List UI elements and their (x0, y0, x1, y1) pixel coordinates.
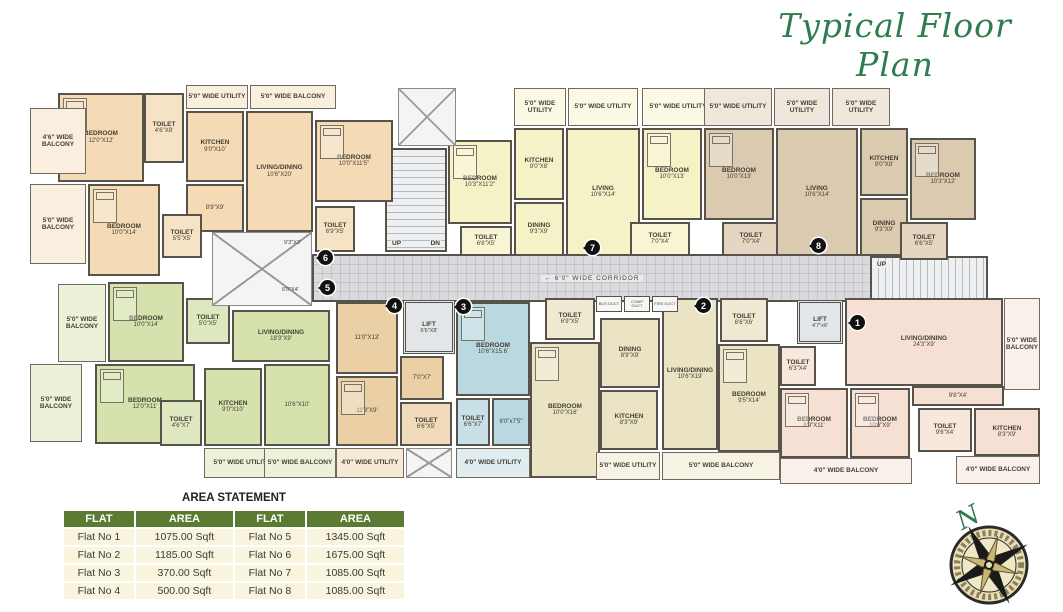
room-kitchen: KITCHEN9'0"X10' (204, 368, 262, 446)
room-label: LIVING/DINING (258, 329, 304, 336)
room-5-0-wide-balcony: 5'0" WIDE BALCONY (58, 284, 106, 362)
bed-icon (535, 347, 559, 381)
room-dims: 4'6"X7' (172, 423, 190, 430)
room-bedroom: BEDROOM10'0"X14' (108, 282, 184, 362)
room-label: TOILET (913, 234, 936, 241)
area-column-header: AREA (306, 510, 405, 528)
room-dims: 10'0"X11'5" (339, 161, 369, 168)
room-label: 5'0" WIDE BALCONY (59, 316, 105, 331)
room-label: TOILET (171, 229, 194, 236)
bed-icon (855, 393, 879, 427)
bed-icon (113, 287, 137, 321)
shaft-void (406, 448, 452, 478)
room-bedroom: BEDROOM10'0"X13' (642, 128, 702, 220)
room-label: BEDROOM (655, 167, 689, 174)
room-7-0-x7: 7'0"X7' (400, 356, 444, 400)
room-toilet: TOILET7'0"X4' (630, 222, 690, 256)
lift-dims: 4'7"x6' (812, 323, 828, 329)
bed-icon (341, 381, 365, 415)
duct: BUS DUCT (596, 296, 622, 312)
room-label: TOILET (733, 313, 756, 320)
room-kitchen: KITCHEN9'0"X8' (860, 128, 908, 196)
room-kitchen: KITCHEN9'0"X8' (514, 128, 564, 200)
room-label: 5'0" WIDE BALCONY (261, 93, 326, 100)
room-toilet: TOILET7'0"X4' (722, 222, 780, 256)
flat-marker-8: 8 (811, 238, 826, 253)
area-cell: 1085.00 Sqft (306, 564, 405, 582)
corridor: ← 6'0" WIDE CORRIDOR (312, 254, 872, 302)
lift-dims: 6'6"X8' (421, 328, 438, 334)
room-5-0-wide-utility: 5'0" WIDE UTILITY (514, 88, 566, 126)
lift-label: LIFT (422, 321, 436, 328)
room-5-0-wide-utility: 5'0" WIDE UTILITY (568, 88, 638, 126)
room-label: 5'0" WIDE UTILITY (775, 100, 829, 115)
room-label: KITCHEN (219, 400, 248, 407)
room-dining: DINING8'9"X9' (600, 318, 660, 388)
room-bedroom: BEDROOM10'6"X15.6' (456, 302, 530, 396)
room-dims: 9'3"X9' (875, 227, 893, 234)
room-dims: 10'6"X10' (284, 402, 309, 409)
room-dims: 7'0"X7' (413, 375, 431, 382)
room-living-dining: LIVING/DINING10'6"X20' (246, 111, 313, 232)
lift: LIFT6'6"X8' (403, 300, 455, 354)
room-label: KITCHEN (525, 157, 554, 164)
bed-icon (723, 349, 747, 383)
room-5-0-wide-utility: 5'0" WIDE UTILITY (832, 88, 890, 126)
room-4-0-wide-balcony: 4'0" WIDE BALCONY (780, 458, 912, 484)
room-dims: 4'6"X8' (155, 128, 173, 135)
room-dims: 10'6"X20' (267, 172, 292, 179)
room-5-0-wide-balcony: 5'0" WIDE BALCONY (250, 85, 336, 109)
area-statement: AREA STATEMENT FLATAREAFLATAREA Flat No … (62, 492, 406, 601)
room-label: 4'0" WIDE BALCONY (966, 466, 1031, 473)
room-label: 4'0" WIDE UTILITY (342, 459, 399, 466)
bed-icon (785, 393, 809, 427)
room-dims: 7'0"X4' (651, 239, 669, 246)
room-label: BEDROOM (548, 403, 582, 410)
bed-icon (100, 369, 124, 403)
room-dims: 9'0"X8' (875, 162, 893, 169)
room-label: TOILET (475, 234, 498, 241)
room-label: 5'0" WIDE UTILITY (575, 103, 632, 110)
room-dims: 9'0"X10' (204, 147, 226, 154)
room-toilet: TOILET6'6"X5' (400, 402, 452, 446)
room-bedroom: BEDROOM10'3"X12' (910, 138, 976, 220)
room-dims: 24'3"X9' (913, 342, 935, 349)
area-cell: Flat No 2 (63, 546, 135, 564)
room-label: BEDROOM (84, 130, 118, 137)
room-dims: 8'3"X9' (998, 432, 1016, 439)
corridor-label: ← 6'0" WIDE CORRIDOR (541, 275, 642, 282)
room-label: LIVING/DINING (901, 335, 947, 342)
room-label: 5'0" WIDE UTILITY (189, 93, 246, 100)
room-dims: 6'6"X5' (477, 241, 495, 248)
area-cell: 1345.00 Sqft (306, 528, 405, 546)
room-dims: 10'0"X16' (552, 410, 577, 417)
room-dims: 6'6"X5' (417, 424, 435, 431)
room-label: 4'0" WIDE BALCONY (814, 467, 879, 474)
room-bedroom: BEDROOM10'0"X14' (88, 184, 160, 276)
dimension-annotation: 9'3"X3' (284, 240, 301, 246)
room-dims: 6'6"X6' (735, 320, 753, 327)
flat-marker-7: 7 (585, 240, 600, 255)
room-label: TOILET (153, 121, 176, 128)
room-label: LIVING/DINING (256, 164, 302, 171)
room-dims: 5'5"X5' (173, 236, 191, 243)
room-label: BEDROOM (107, 223, 141, 230)
room-label: 5'0" WIDE BALCONY (268, 459, 333, 466)
area-cell: Flat No 8 (234, 582, 306, 600)
bed-icon (453, 145, 477, 179)
room-bedroom: BEDROOM10'0"X11'5" (315, 120, 393, 202)
area-cell: 500.00 Sqft (135, 582, 234, 600)
room-toilet: TOILET6'3"X4' (780, 346, 816, 386)
room-living: LIVING10'6"X14' (776, 128, 858, 256)
room-label: BEDROOM (128, 397, 162, 404)
area-cell: Flat No 4 (63, 582, 135, 600)
room-living-dining: LIVING/DINING18'3"X9' (232, 310, 330, 362)
room-label: TOILET (559, 312, 582, 319)
room-label: 5'0" WIDE BALCONY (31, 396, 81, 411)
room-bedroom: BEDROOM10'0"X16' (530, 342, 600, 478)
room-5-0-wide-utility: 5'0" WIDE UTILITY (596, 452, 660, 480)
room-label: 4'6" WIDE BALCONY (31, 134, 85, 149)
room-dims: 12'0"X12' (88, 138, 113, 145)
room-dims: 11'0"X13' (355, 335, 380, 342)
room-dims: 6'6"X5' (915, 241, 933, 248)
staircase: UPDN (385, 148, 447, 252)
room-toilet: TOILET9'6"X4' (918, 408, 972, 452)
room-label: KITCHEN (201, 139, 230, 146)
room-bedroom: BEDROOM10'0"X13' (704, 128, 774, 220)
room-kitchen: KITCHEN8'3"X9' (600, 390, 658, 450)
room-4-0-wide-balcony: 4'0" WIDE BALCONY (956, 456, 1040, 484)
area-cell: 1085.00 Sqft (306, 582, 405, 600)
room-label: 5'0" WIDE BALCONY (31, 217, 85, 232)
room-toilet: TOILET6'6"X6' (720, 298, 768, 342)
area-cell: 1075.00 Sqft (135, 528, 234, 546)
room-label: TOILET (649, 232, 672, 239)
room-label: KITCHEN (615, 413, 644, 420)
room-toilet: TOILET4'6"X7' (160, 400, 202, 446)
room-label: TOILET (324, 222, 347, 229)
room-dims: 10'0"X13' (726, 174, 751, 181)
room-dims: 10'6"X14' (590, 192, 615, 199)
room-label: BEDROOM (722, 167, 756, 174)
area-cell: Flat No 7 (234, 564, 306, 582)
room-bedroom: BEDROOM9'5"X14' (718, 344, 780, 452)
room-dims: 7'0"X4' (742, 239, 760, 246)
room-dims: 9'5"X14' (738, 398, 760, 405)
area-column-header: AREA (135, 510, 234, 528)
room-label: DINING (528, 222, 551, 229)
room-toilet: TOILET6'6"X7' (456, 398, 490, 446)
area-row: Flat No 11075.00 SqftFlat No 51345.00 Sq… (63, 528, 405, 546)
room-kitchen: KITCHEN8'3"X9' (974, 408, 1040, 456)
room-bedroom: BEDROOM10'3"X11'2" (448, 140, 512, 224)
area-cell: 1675.00 Sqft (306, 546, 405, 564)
room-label: 5'0" WIDE UTILITY (214, 459, 271, 466)
area-row: Flat No 21185.00 SqftFlat No 61675.00 Sq… (63, 546, 405, 564)
room-dims: 8'9"X9' (206, 205, 224, 212)
room-dims: 9'0"X8' (530, 164, 548, 171)
room-label: KITCHEN (993, 425, 1022, 432)
area-column-header: FLAT (63, 510, 135, 528)
stairs-up-label: UP (876, 261, 887, 268)
room-5-0-wide-balcony: 5'0" WIDE BALCONY (30, 184, 86, 264)
room-label: 5'0" WIDE BALCONY (1005, 337, 1039, 352)
flat-marker-2: 2 (696, 298, 711, 313)
room-4-6-wide-balcony: 4'6" WIDE BALCONY (30, 108, 86, 174)
room-label: DINING (619, 346, 642, 353)
room-label: KITCHEN (870, 155, 899, 162)
room-4-0-wide-utility: 4'0" WIDE UTILITY (456, 448, 530, 478)
area-row: Flat No 4500.00 SqftFlat No 81085.00 Sqf… (63, 582, 405, 600)
room-toilet: TOILET4'6"X8' (144, 93, 184, 163)
floor-plan-page: Typical Floor Plan ← 6'0" WIDE CORRIDORU… (0, 0, 1063, 612)
room-dims: 6'9"X5' (561, 319, 579, 326)
stairs-dn-label: DN (430, 240, 441, 247)
room-dims: 10'6"X15.6' (478, 349, 508, 356)
room-label: LIVING (592, 185, 614, 192)
area-statement-title: AREA STATEMENT (62, 492, 406, 504)
area-cell: 1185.00 Sqft (135, 546, 234, 564)
room-label: TOILET (740, 232, 763, 239)
room-dims: 10'0"X13' (659, 174, 684, 181)
bed-icon (647, 133, 671, 167)
room-dims: 12'0"X11' (133, 404, 158, 411)
bed-icon (915, 143, 939, 177)
room-kitchen: KITCHEN9'0"X10' (186, 111, 244, 182)
bed-icon (320, 125, 344, 159)
room-label: 5'0" WIDE UTILITY (650, 103, 707, 110)
flat-marker-6: 6 (318, 250, 333, 265)
compass-rose: N (935, 505, 1040, 610)
room-label: TOILET (415, 417, 438, 424)
room-5-0-wide-utility: 5'0" WIDE UTILITY (704, 88, 772, 126)
room-label: BEDROOM (732, 391, 766, 398)
compass-icon (935, 505, 1040, 610)
room-toilet: TOILET5'5"X5' (162, 214, 202, 258)
room-dims: 8'9"X9' (621, 353, 639, 360)
room-dims: 9'6"X4' (949, 393, 967, 400)
lift: LIFT4'7"x6' (797, 300, 843, 344)
room-9-6-x4: 9'6"X4' (912, 386, 1004, 406)
duct: FIRE DUCT (652, 296, 678, 312)
room-label: 5'0" WIDE UTILITY (710, 103, 767, 110)
room-label: 4'0" WIDE UTILITY (465, 459, 522, 466)
room-dining: DINING9'3"X9' (514, 202, 564, 256)
duct: COMP DUCT (624, 296, 650, 312)
room-label: TOILET (197, 314, 220, 321)
room-toilet: TOILET6'9"X5' (545, 298, 595, 340)
room-dims: 6'6"X7' (464, 422, 482, 429)
room-label: LIVING (806, 185, 828, 192)
room-bedroom: BEDROOM10'6"X9' (850, 388, 910, 458)
area-column-header: FLAT (234, 510, 306, 528)
room-dims: 8'3"X9' (620, 420, 638, 427)
flat-marker-4: 4 (387, 298, 402, 313)
dimension-annotation: 6'0"X4' (282, 287, 299, 293)
room-dims: 18'3"X9' (270, 336, 292, 343)
room-5-0-wide-utility: 5'0" WIDE UTILITY (774, 88, 830, 126)
flat-marker-1: 1 (850, 315, 865, 330)
room-dims: 10'3"X11'2" (465, 182, 495, 189)
room-dims: 10'0"X14' (133, 322, 158, 329)
area-cell: Flat No 1 (63, 528, 135, 546)
room-toilet: TOILET6'6"X5' (460, 226, 512, 256)
area-cell: 370.00 Sqft (135, 564, 234, 582)
room-dims: 9'3"X9' (530, 229, 548, 236)
room-living-dining: LIVING/DINING24'3"X9' (845, 298, 1003, 386)
flat-marker-5: 5 (320, 280, 335, 295)
room-5-0-wide-balcony: 5'0" WIDE BALCONY (264, 448, 336, 478)
room-label: TOILET (170, 416, 193, 423)
room-living-dining: LIVING/DINING10'6"X19' (662, 298, 718, 450)
room-dims: 6'3"X4' (789, 366, 807, 373)
room-4-0-wide-utility: 4'0" WIDE UTILITY (336, 448, 404, 478)
room-dims: 5'0"X5' (199, 321, 217, 328)
room-label: TOILET (462, 415, 485, 422)
room-label: BEDROOM (476, 342, 510, 349)
room-dims: 10'0"X14' (111, 230, 136, 237)
area-statement-table: FLATAREAFLATAREA Flat No 11075.00 SqftFl… (62, 509, 406, 601)
room-label: 5'0" WIDE UTILITY (833, 100, 889, 115)
room-label: LIVING/DINING (667, 367, 713, 374)
room-dims: 6'9"X5' (326, 229, 344, 236)
room-5-0-wide-utility: 5'0" WIDE UTILITY (186, 85, 248, 109)
room-5-0-wide-balcony: 5'0" WIDE BALCONY (30, 364, 82, 442)
room-toilet: TOILET6'6"X5' (900, 222, 948, 260)
room-11-3-x9: 11'3"X9' (336, 376, 398, 446)
room-dims: 10'6"X19' (677, 374, 702, 381)
room-label: DINING (873, 220, 896, 227)
bed-icon (709, 133, 733, 167)
area-cell: Flat No 3 (63, 564, 135, 582)
bed-icon (93, 189, 117, 223)
stairs-up-label: UP (391, 240, 402, 247)
room-5-0-wide-balcony: 5'0" WIDE BALCONY (1004, 298, 1040, 390)
room-toilet: TOILET6'9"X5' (315, 206, 355, 252)
room-label: TOILET (934, 423, 957, 430)
room-dims: 10'3"X12' (930, 179, 955, 186)
room-dims: 9'6"X4' (936, 430, 954, 437)
flat-marker-3: 3 (456, 299, 471, 314)
room-dims: 9'0"X10' (222, 407, 244, 414)
area-cell: Flat No 6 (234, 546, 306, 564)
room-5-0-wide-balcony: 5'0" WIDE BALCONY (662, 452, 780, 480)
room-6-0-x7-5: 6'0"x7'5" (492, 398, 530, 446)
shaft-void (398, 88, 456, 146)
area-row: Flat No 3370.00 SqftFlat No 71085.00 Sqf… (63, 564, 405, 582)
room-label: 5'0" WIDE UTILITY (515, 100, 565, 115)
area-cell: Flat No 5 (234, 528, 306, 546)
room-label: 5'0" WIDE BALCONY (689, 462, 754, 469)
room-living: LIVING10'6"X14' (566, 128, 640, 256)
room-bedroom: BEDROOM9'9"X11' (780, 388, 848, 458)
room-dims: 10'6"X14' (804, 192, 829, 199)
room-11-0-x13: 11'0"X13' (336, 302, 398, 374)
room-label: 5'0" WIDE UTILITY (600, 462, 657, 469)
room-10-6-x10: 10'6"X10' (264, 364, 330, 446)
lift-label: LIFT (813, 316, 827, 323)
room-label: TOILET (787, 359, 810, 366)
room-dims: 6'0"x7'5" (500, 419, 523, 426)
